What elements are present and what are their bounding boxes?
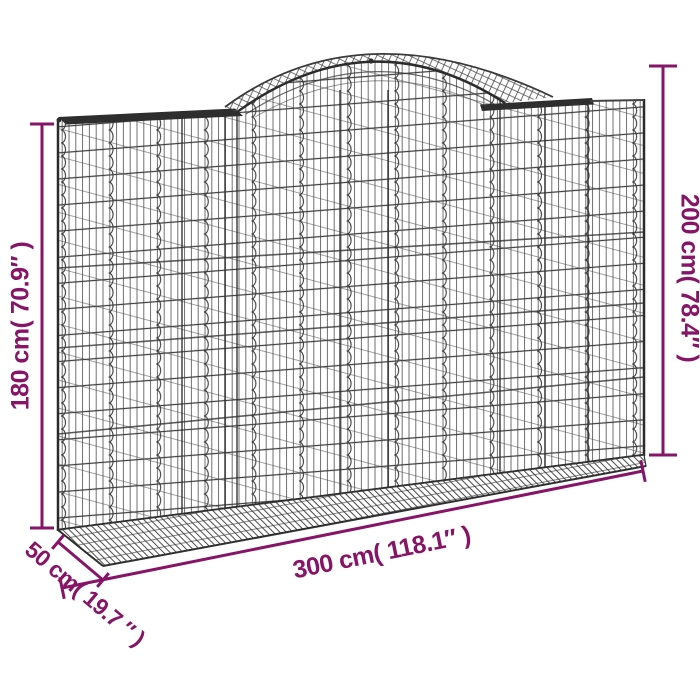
height-180-label: 180 cm( 70.9″ ) xyxy=(7,242,35,411)
arch-peak-knob xyxy=(368,58,373,63)
gabion-basket-illustration xyxy=(40,0,660,580)
height-200-dimension xyxy=(649,66,677,455)
height-200-label: 200 cm( 78.4″ ) xyxy=(675,194,700,363)
width-300-label: 300 cm( 118.1″ ) xyxy=(290,521,473,584)
corner-knob-left xyxy=(57,118,62,123)
top-edge-right xyxy=(590,100,644,101)
dimension-diagram: 180 cm( 70.9″ ) 200 cm( 78.4″ ) 300 cm( … xyxy=(0,0,700,700)
